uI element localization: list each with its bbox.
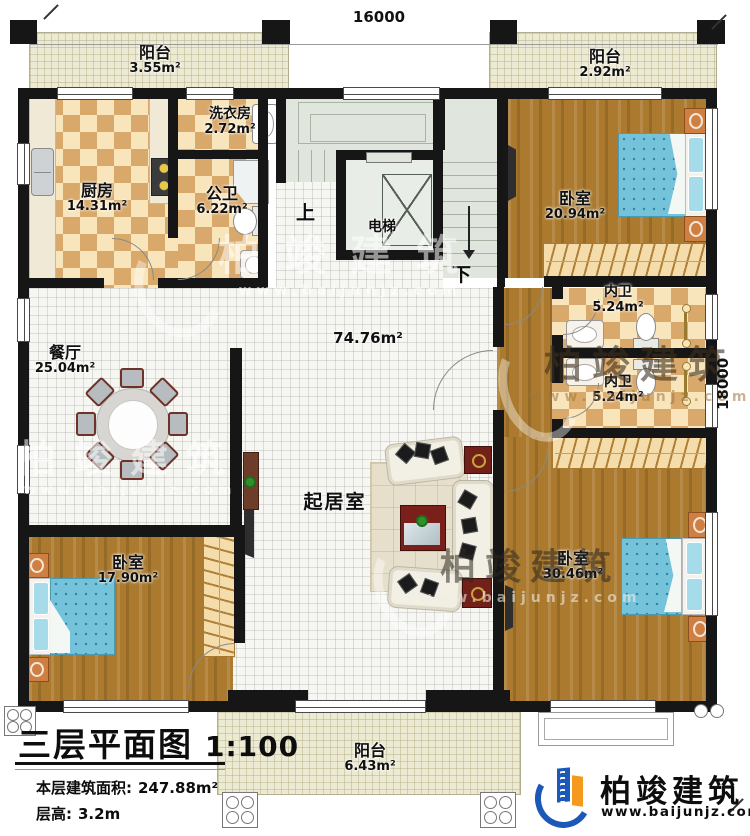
- pillow: [33, 618, 49, 651]
- wall-kitchen: [18, 278, 104, 288]
- drawing-scale: 1:100: [205, 730, 299, 763]
- column: [10, 20, 37, 44]
- stair-arrow-line: [468, 206, 470, 252]
- side-table: [462, 578, 492, 608]
- pillow: [686, 578, 703, 611]
- dining-chair: [76, 412, 96, 436]
- room-label-public-bath: 公卫6.22m²: [172, 185, 272, 217]
- column: [262, 20, 290, 44]
- wall-inner-bath: [552, 287, 563, 299]
- balcony-door: [57, 87, 133, 100]
- dining-chair: [120, 368, 144, 388]
- title-underline: [15, 762, 225, 765]
- wall-inner-bath-divider: [552, 348, 706, 358]
- stair-landing-line: [310, 114, 426, 142]
- room-label-bedroom-top-right: 卧室20.94m²: [515, 190, 635, 222]
- wall-bedroom2: [234, 525, 245, 643]
- company-logo-icon: [535, 764, 595, 824]
- room-label-dining: 餐厅25.04m²: [15, 344, 115, 376]
- window: [63, 700, 189, 713]
- room-label-balcony-top-right: 阳台2.92m²: [545, 48, 665, 80]
- wall-corridor: [493, 287, 504, 347]
- room-label-bedroom-bottom-left: 卧室17.90m²: [68, 554, 188, 586]
- window: [705, 294, 718, 340]
- room-label-bedroom-bottom-right: 卧室30.46m²: [513, 550, 633, 582]
- window: [17, 143, 30, 185]
- room-label-living-area: 74.76m²: [308, 330, 428, 347]
- wardrobe: [203, 533, 235, 657]
- balcony-door: [295, 700, 426, 713]
- stair-arrow-head: [463, 250, 475, 259]
- stair-down-label: 下: [452, 260, 471, 287]
- column: [697, 20, 725, 44]
- room-label-kitchen: 厨房14.31m²: [37, 182, 157, 214]
- towel-rail: [684, 370, 687, 398]
- dining-chair: [168, 412, 188, 436]
- plant: [244, 476, 256, 488]
- elevator-door: [366, 152, 412, 163]
- room-label-living: 起居室: [275, 492, 395, 513]
- elevator-label: 电梯: [347, 220, 417, 236]
- pillow: [688, 137, 704, 173]
- logo-building-orange-icon: [572, 775, 583, 807]
- dimension-top: 16000: [334, 8, 424, 26]
- room-label-laundry: 洗衣房2.72m²: [180, 107, 280, 137]
- column: [490, 20, 517, 44]
- drawing-title: 三层平面图1:100: [18, 718, 299, 766]
- toilet: [636, 313, 656, 341]
- title-underline-thin: [15, 769, 225, 770]
- wardrobe: [552, 437, 708, 469]
- stair-up-label: 上: [296, 198, 315, 225]
- stair-flight-up: [286, 150, 336, 182]
- window: [17, 445, 30, 494]
- nightstand: [684, 216, 708, 242]
- wall-dining: [230, 348, 242, 530]
- tv: [505, 585, 513, 631]
- dining-table-top: [108, 400, 158, 450]
- balcony-column: [480, 792, 516, 828]
- dimension-line-top: [30, 44, 718, 45]
- window: [705, 108, 718, 210]
- floor-height-info: 层高:3.2m: [36, 803, 120, 824]
- balcony-door: [548, 87, 662, 100]
- wardrobe: [543, 243, 708, 278]
- wall-corridor: [493, 410, 504, 701]
- porch: [538, 712, 674, 746]
- dimension-right: 18000: [714, 338, 732, 430]
- pillow: [33, 582, 49, 615]
- sofa-pillow: [461, 517, 478, 534]
- window: [186, 87, 234, 100]
- floor-area-info: 本层建筑面积:247.88m²: [36, 777, 218, 798]
- plant: [414, 513, 430, 529]
- window: [705, 512, 718, 616]
- sofa-pillow: [414, 442, 431, 459]
- room-label-inner-bath-bottom: 内卫5.24m²: [568, 375, 668, 405]
- dining-chair: [120, 460, 144, 480]
- wall-bedroom2: [18, 525, 245, 537]
- wall-bedroom1: [497, 276, 505, 287]
- tv: [244, 506, 254, 558]
- room-label-balcony-top-left: 阳台3.55m²: [95, 44, 215, 76]
- window: [17, 298, 30, 342]
- balcony-column: [222, 792, 258, 828]
- column-circles: [694, 704, 728, 720]
- side-table: [464, 446, 492, 474]
- wall-bedroom2: [234, 690, 245, 702]
- company-website: www.baijunjz.com: [601, 804, 750, 820]
- pillow: [688, 176, 704, 212]
- room-label-balcony-bottom: 阳台6.43m²: [310, 742, 430, 774]
- floor-title-text: 三层平面图: [18, 725, 193, 764]
- wall-laundry: [178, 150, 268, 159]
- floor-plan: 上 下 电梯 阳台3.55m² 阳台2.92m² 厨房14.31m² 洗衣房2.…: [0, 0, 750, 836]
- logo-building-blue-icon: [557, 767, 570, 802]
- wall-inner-bath: [552, 428, 706, 438]
- wall-bedroom1: [497, 88, 508, 278]
- towel-rail: [684, 312, 687, 340]
- window: [343, 87, 440, 100]
- pillow: [686, 542, 703, 575]
- room-label-inner-bath-top: 内卫5.24m²: [568, 285, 668, 315]
- dimension-tick: [43, 4, 59, 20]
